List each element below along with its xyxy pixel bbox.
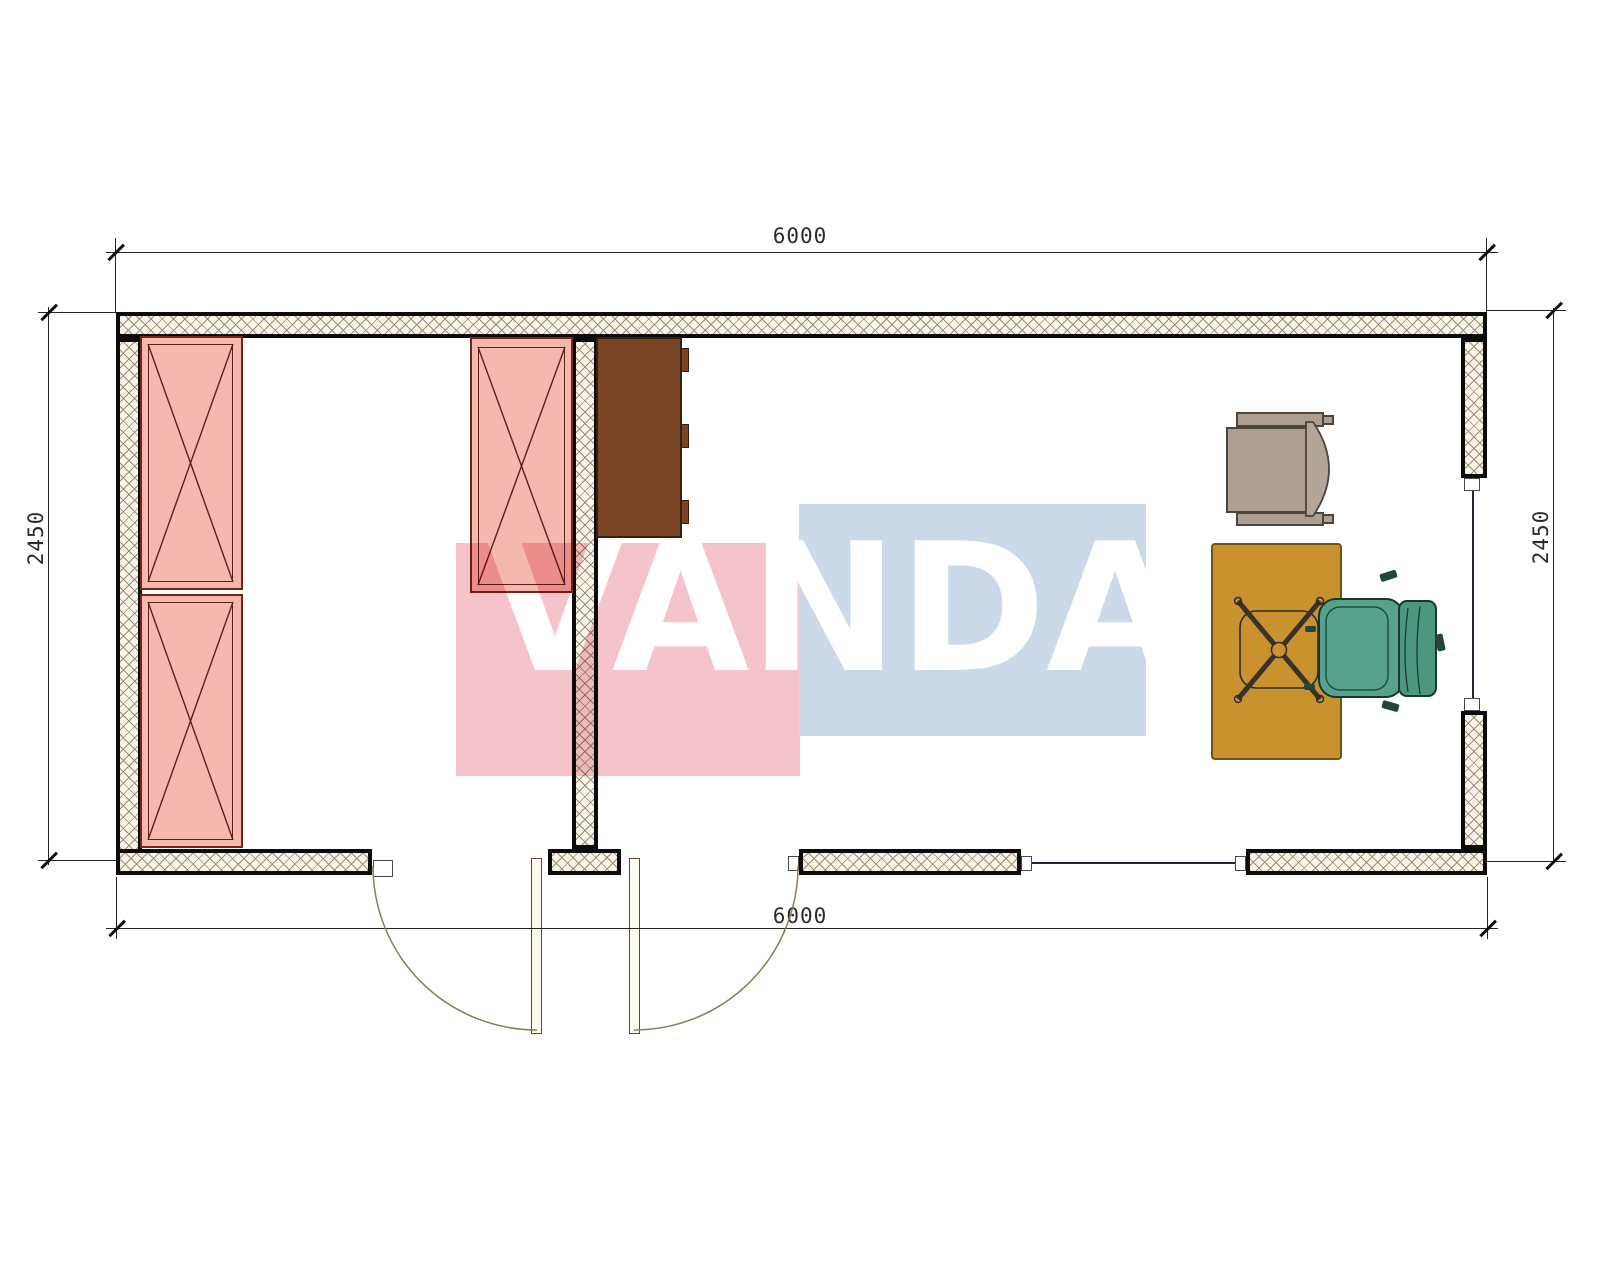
wardrobe-cross-marks: [148, 344, 565, 840]
executive-chair-details: [1304, 569, 1446, 712]
linework-overlay: [0, 0, 1600, 1280]
armchair-backrest: [1306, 422, 1329, 516]
door-swing-arcs: [373, 866, 798, 1030]
floor-plan-canvas: 6000 6000 2450 2450: [0, 0, 1600, 1280]
